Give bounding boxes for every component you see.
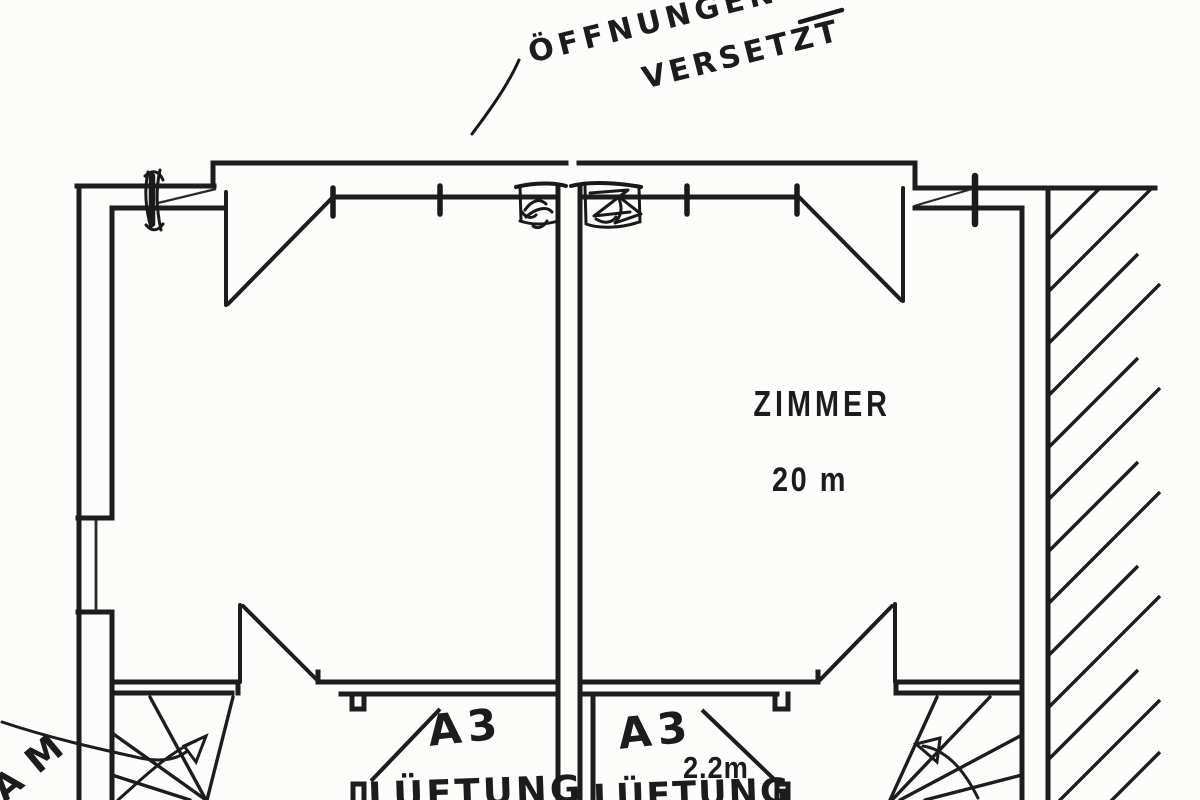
- doors: [226, 188, 903, 682]
- room-area-label: 20 m: [764, 461, 856, 500]
- wall-ticks: [152, 176, 975, 224]
- room-label: ZIMMER: [753, 383, 860, 425]
- hatching: [1048, 148, 1160, 800]
- walls: [77, 163, 1155, 800]
- stair-right: [890, 697, 1022, 800]
- floorplan-linework: [0, 0, 1200, 800]
- shaft-left-code: A3: [426, 699, 506, 757]
- shaft-right-code: A3: [616, 702, 696, 760]
- note-leader: [472, 60, 519, 134]
- floorplan-scan: ÖFFNUNGEN VERSETZT ZIMMER 20 m 2.2m A3 A…: [0, 0, 1200, 800]
- walkline-arrow-left: [184, 736, 206, 762]
